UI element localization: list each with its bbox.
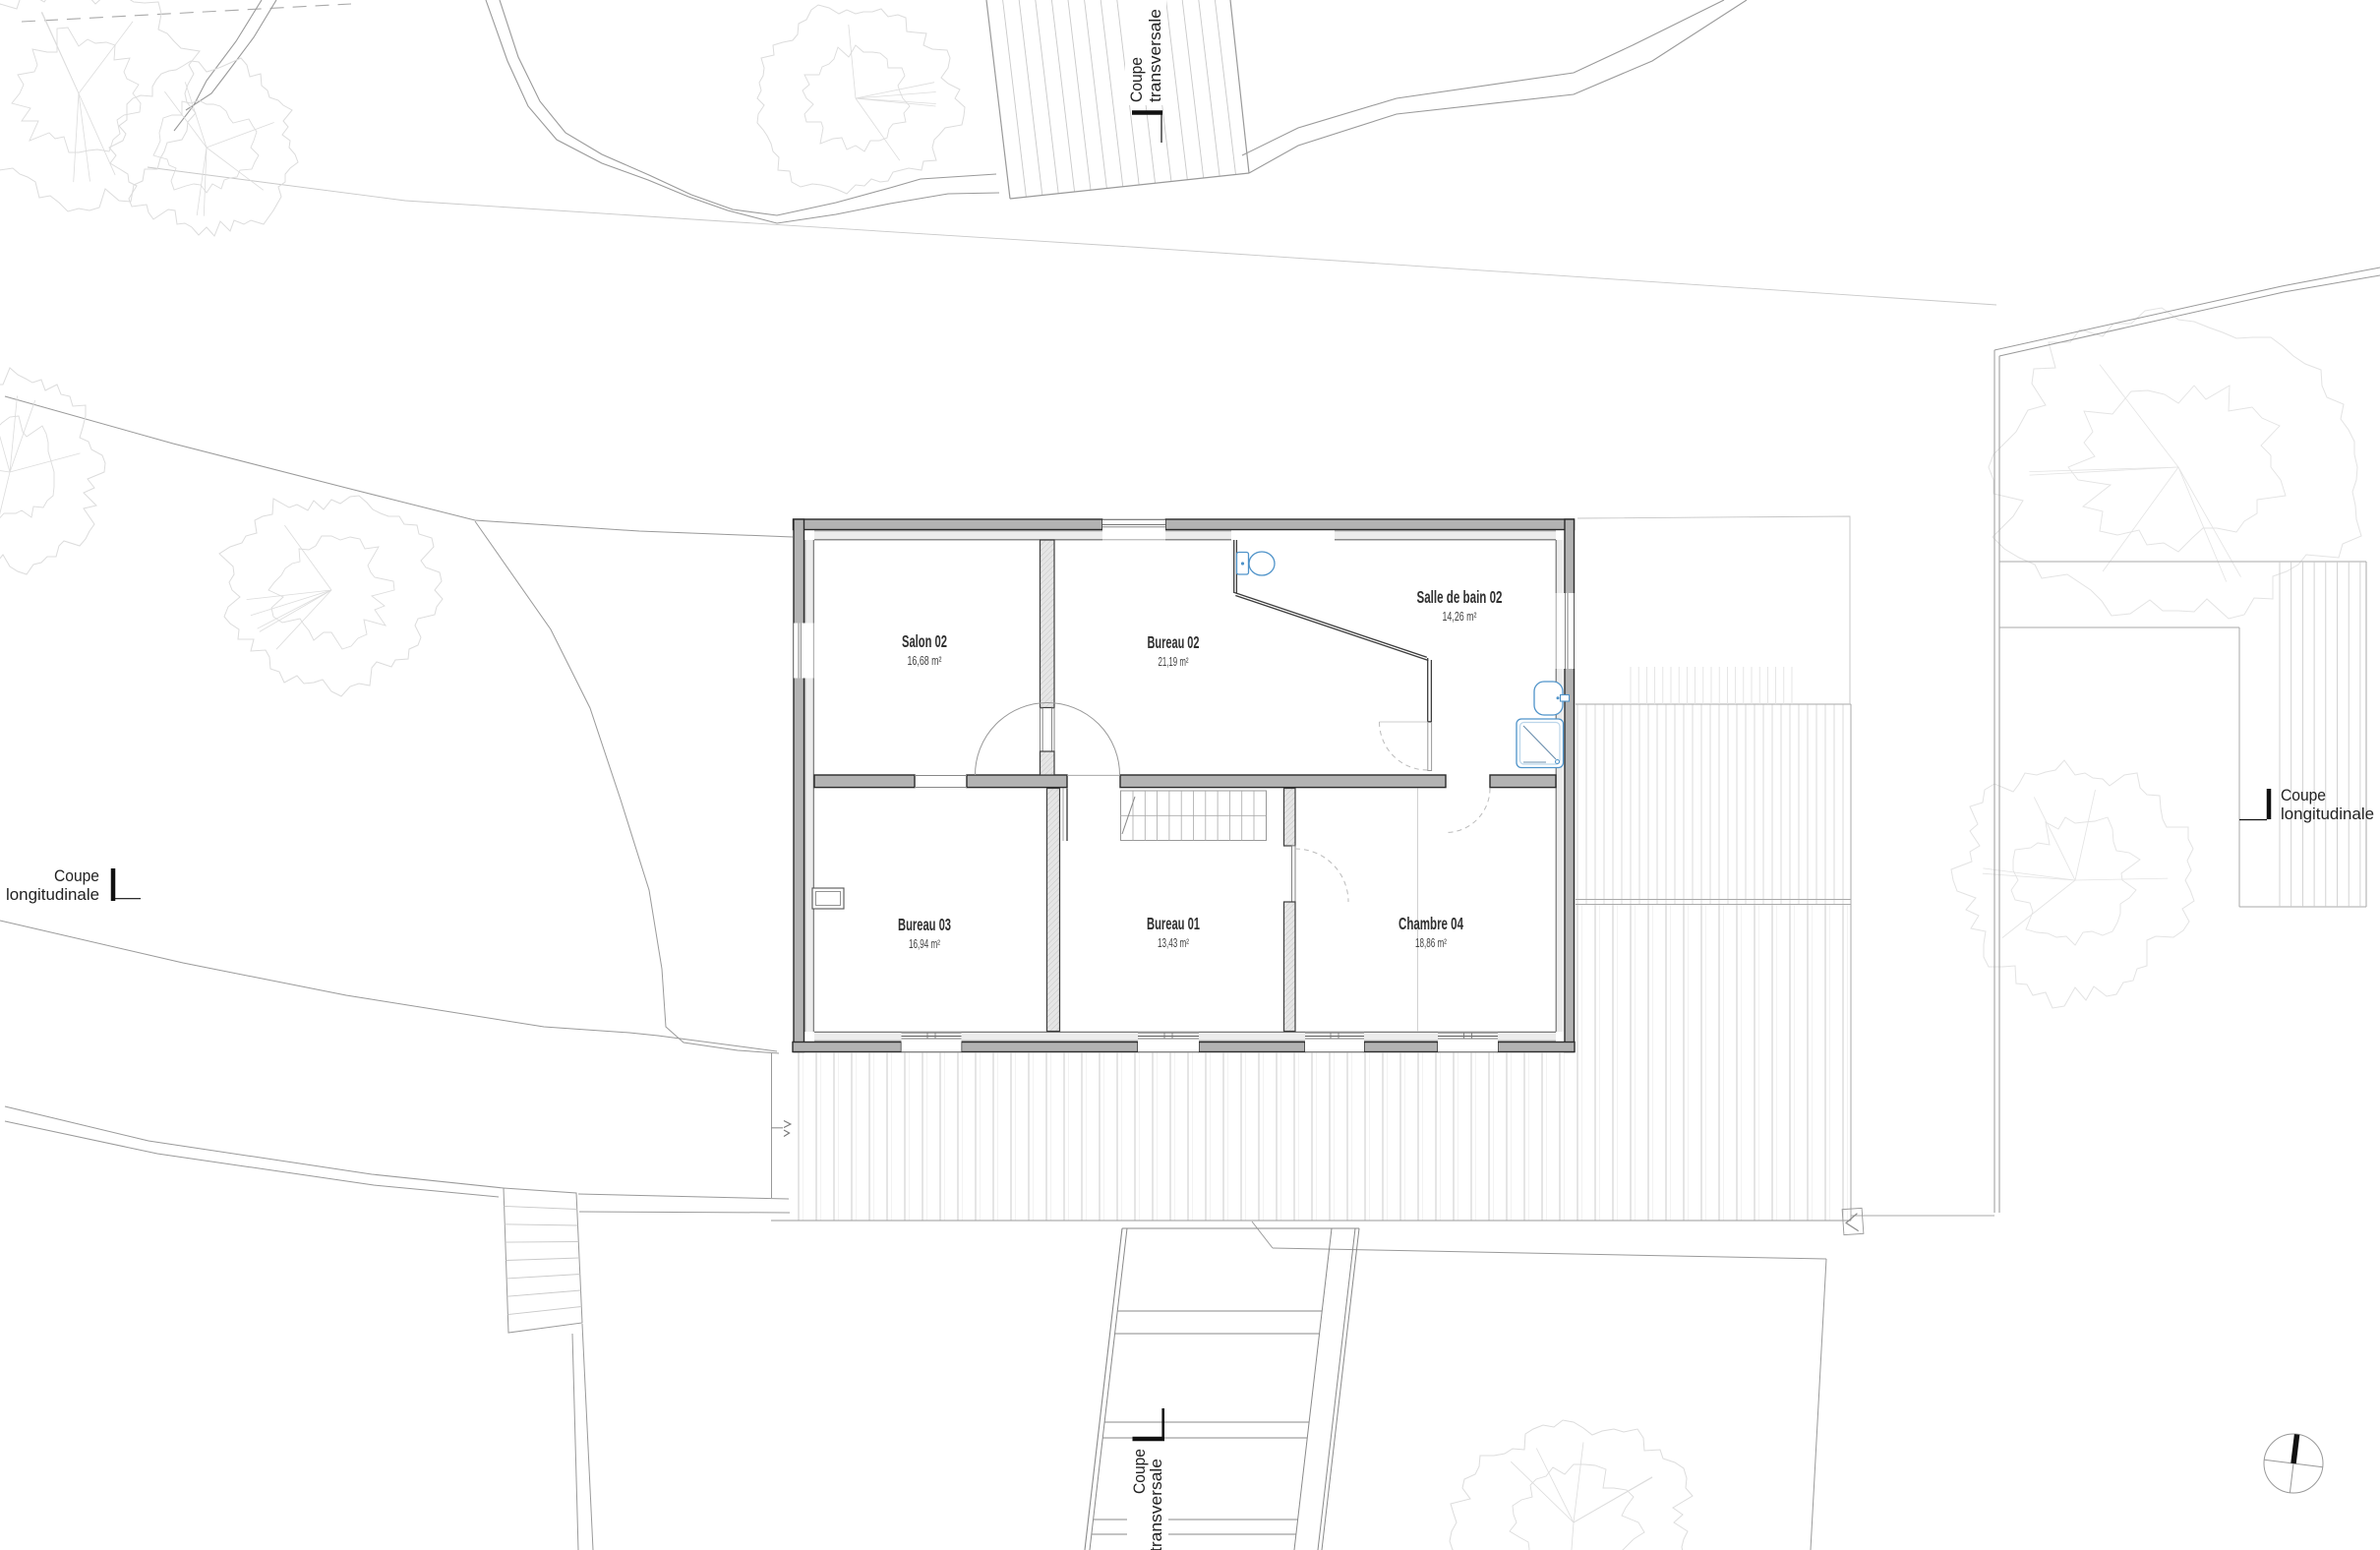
svg-text:Coupe: Coupe [54, 866, 99, 885]
svg-text:13,43 m²: 13,43 m² [1158, 936, 1189, 950]
svg-text:Bureau 01: Bureau 01 [1147, 914, 1200, 933]
svg-text:16,68 m²: 16,68 m² [908, 654, 942, 668]
svg-text:transversale: transversale [1146, 9, 1164, 102]
svg-text:18,86 m²: 18,86 m² [1415, 936, 1447, 950]
svg-text:Salle de bain 02: Salle de bain 02 [1417, 587, 1503, 607]
svg-text:Coupe: Coupe [2281, 786, 2326, 805]
svg-text:longitudinale: longitudinale [2281, 805, 2374, 823]
svg-text:Chambre 04: Chambre 04 [1398, 914, 1463, 933]
svg-text:21,19 m²: 21,19 m² [1159, 655, 1189, 669]
svg-text:16,94 m²: 16,94 m² [909, 937, 940, 951]
svg-text:Salon 02: Salon 02 [902, 631, 947, 651]
svg-text:Bureau 03: Bureau 03 [898, 915, 951, 934]
svg-text:longitudinale: longitudinale [6, 885, 99, 904]
svg-text:Bureau 02: Bureau 02 [1148, 632, 1200, 652]
svg-text:14,26 m²: 14,26 m² [1443, 610, 1477, 624]
svg-text:transversale: transversale [1147, 1459, 1165, 1550]
svg-text:Coupe: Coupe [1127, 57, 1146, 102]
